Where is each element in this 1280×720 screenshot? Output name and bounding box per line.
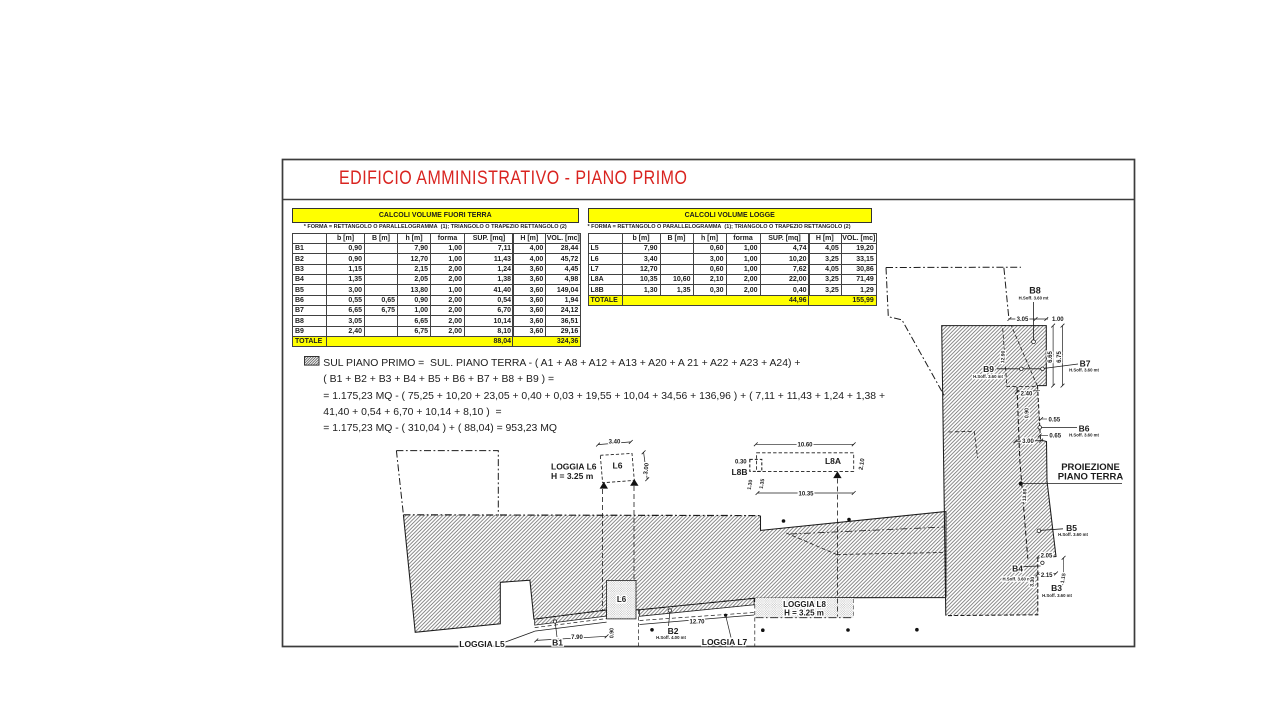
svg-text:H.Soff. 3.60 mt: H.Soff. 3.60 mt xyxy=(1002,577,1032,582)
svg-text:H = 3.25 m: H = 3.25 m xyxy=(551,471,594,481)
svg-text:3.30: 3.30 xyxy=(1029,577,1036,588)
svg-text:L8B: L8B xyxy=(731,467,747,477)
svg-text:H.Soff. 3.60 mt: H.Soff. 3.60 mt xyxy=(1042,593,1072,598)
svg-text:1.00: 1.00 xyxy=(1052,317,1064,323)
svg-text:L8A: L8A xyxy=(825,456,841,466)
svg-text:H.Soff. 3.60 mt: H.Soff. 3.60 mt xyxy=(1019,296,1049,301)
svg-text:B1: B1 xyxy=(552,637,563,647)
svg-text:L6: L6 xyxy=(617,595,627,604)
svg-text:2.15: 2.15 xyxy=(1041,573,1053,579)
svg-text:6.65: 6.65 xyxy=(1048,351,1054,363)
svg-text:0.55: 0.55 xyxy=(1049,417,1061,423)
svg-text:2.40: 2.40 xyxy=(1021,392,1033,398)
svg-text:LOGGIA L6: LOGGIA L6 xyxy=(551,461,597,471)
svg-text:B3: B3 xyxy=(1051,583,1062,593)
svg-text:3.00: 3.00 xyxy=(643,462,650,475)
svg-text:H.Soff. 3.60 mt: H.Soff. 3.60 mt xyxy=(1058,532,1088,537)
svg-text:0.90: 0.90 xyxy=(1025,408,1031,418)
svg-text:B9: B9 xyxy=(983,364,994,374)
svg-text:PIANO TERRA: PIANO TERRA xyxy=(1058,472,1124,483)
svg-text:LOGGIA L5: LOGGIA L5 xyxy=(459,639,505,649)
svg-text:10.60: 10.60 xyxy=(797,442,813,448)
svg-text:10.35: 10.35 xyxy=(798,491,814,497)
svg-text:H.Soff. 3.60 mt: H.Soff. 3.60 mt xyxy=(1069,433,1099,438)
svg-text:0.90: 0.90 xyxy=(610,628,616,638)
svg-text:3.00: 3.00 xyxy=(1022,439,1034,445)
svg-text:12.70: 12.70 xyxy=(689,619,705,625)
svg-text:7.90: 7.90 xyxy=(571,635,583,641)
svg-text:H = 3.25 m: H = 3.25 m xyxy=(784,608,824,617)
svg-text:6.75: 6.75 xyxy=(1057,351,1063,363)
svg-text:2.10: 2.10 xyxy=(859,457,867,470)
svg-text:1.35: 1.35 xyxy=(759,478,767,489)
svg-text:0.65: 0.65 xyxy=(1049,434,1061,440)
svg-text:L6: L6 xyxy=(613,461,623,471)
svg-text:LOGGIA L7: LOGGIA L7 xyxy=(702,637,748,647)
svg-text:H.Soff. 3.60 mt: H.Soff. 3.60 mt xyxy=(973,374,1003,379)
svg-text:2.05: 2.05 xyxy=(1041,554,1053,560)
svg-text:B4: B4 xyxy=(1012,563,1023,573)
svg-text:13.80: 13.80 xyxy=(1022,488,1029,501)
svg-text:H.Soff. 3.60 mt: H.Soff. 3.60 mt xyxy=(1069,367,1099,372)
svg-text:3.05: 3.05 xyxy=(1017,317,1029,323)
svg-text:3.40: 3.40 xyxy=(609,439,621,445)
svg-text:0.30: 0.30 xyxy=(735,460,747,466)
svg-text:12.90: 12.90 xyxy=(1000,350,1007,363)
svg-text:H.Soff. 4.00 mt: H.Soff. 4.00 mt xyxy=(656,635,686,640)
svg-text:1.30: 1.30 xyxy=(747,479,755,490)
svg-text:B8: B8 xyxy=(1029,286,1041,296)
